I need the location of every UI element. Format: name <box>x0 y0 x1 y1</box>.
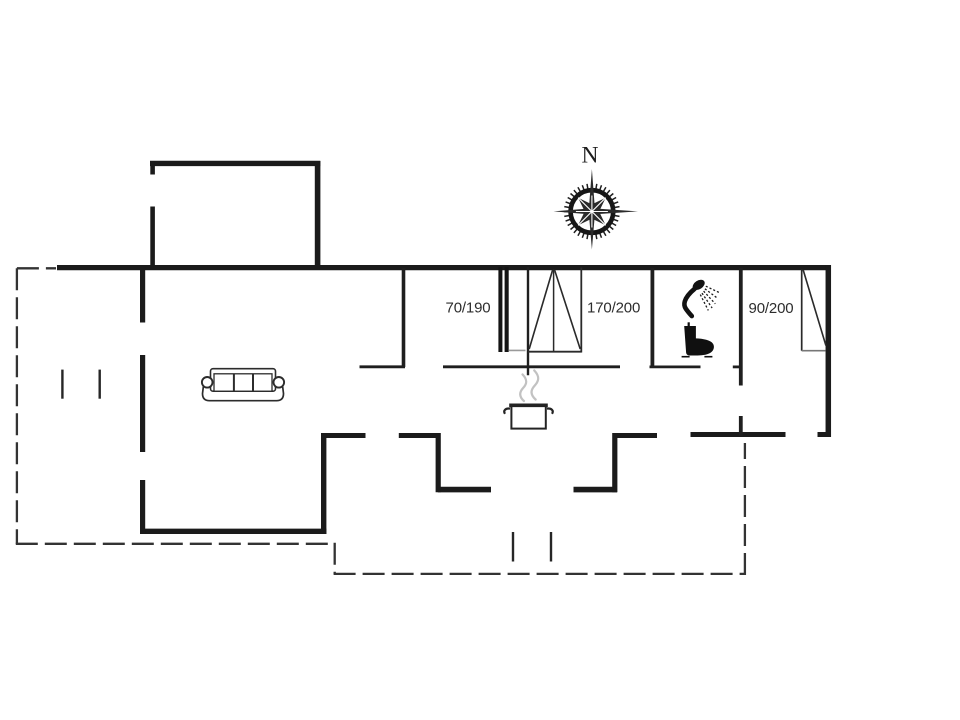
svg-text:90/200: 90/200 <box>749 300 794 317</box>
svg-text:70/190: 70/190 <box>446 300 491 317</box>
svg-text:N: N <box>582 143 599 169</box>
svg-text:170/200: 170/200 <box>587 300 640 317</box>
